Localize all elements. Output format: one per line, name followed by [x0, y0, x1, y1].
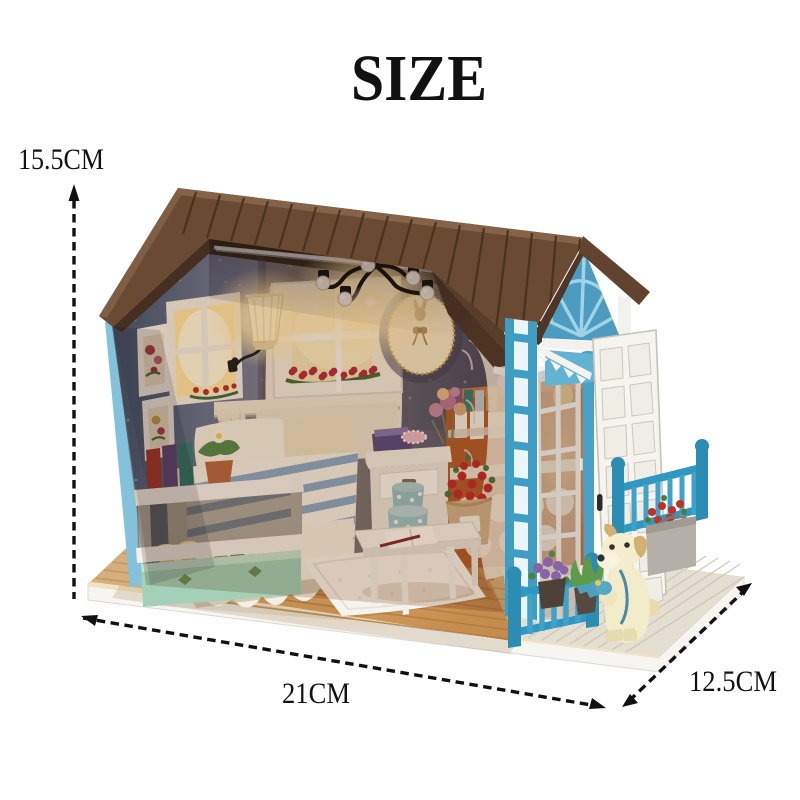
svg-text:21CM: 21CM	[282, 677, 350, 710]
svg-text:SIZE: SIZE	[351, 42, 487, 115]
svg-text:15.5CM: 15.5CM	[18, 143, 104, 176]
svg-text:12.5CM: 12.5CM	[689, 665, 777, 698]
